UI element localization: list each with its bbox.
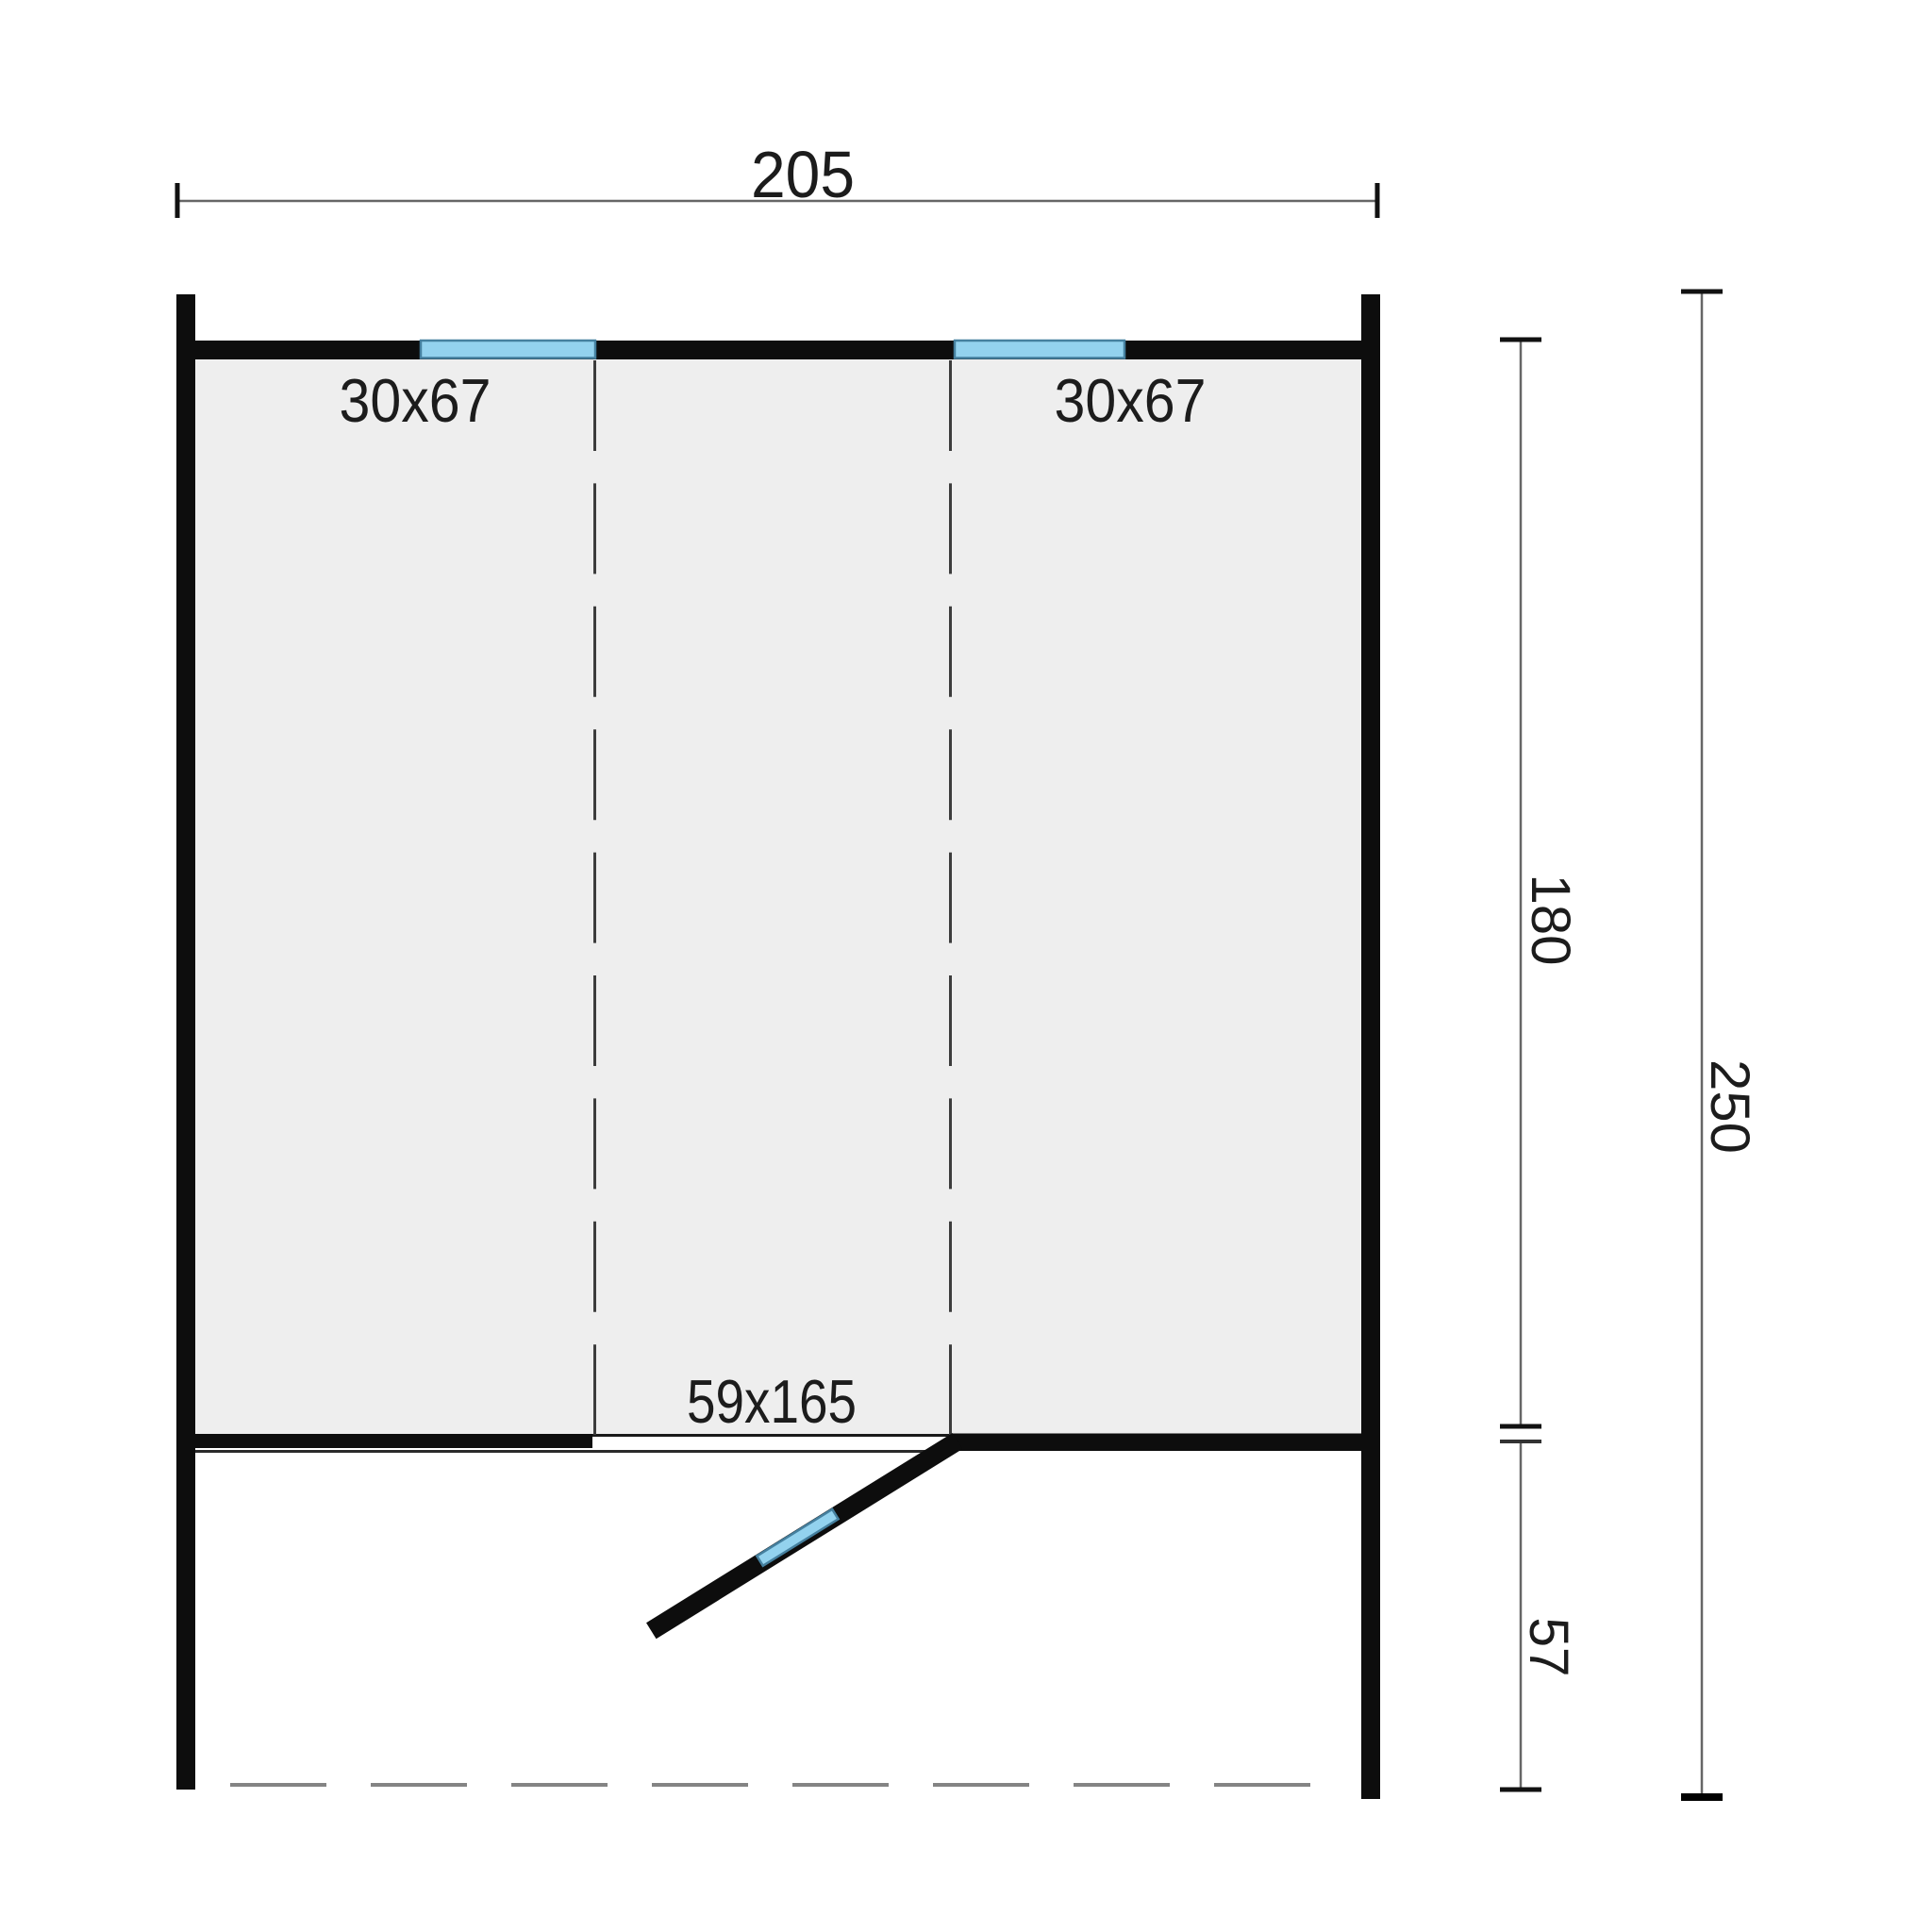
svg-text:59x165: 59x165: [687, 1367, 857, 1436]
svg-text:250: 250: [1699, 1059, 1760, 1154]
svg-text:30x67: 30x67: [340, 366, 491, 435]
svg-text:180: 180: [1520, 874, 1581, 966]
svg-text:30x67: 30x67: [1055, 366, 1207, 435]
svg-text:57: 57: [1518, 1618, 1579, 1677]
svg-text:205: 205: [751, 138, 855, 211]
